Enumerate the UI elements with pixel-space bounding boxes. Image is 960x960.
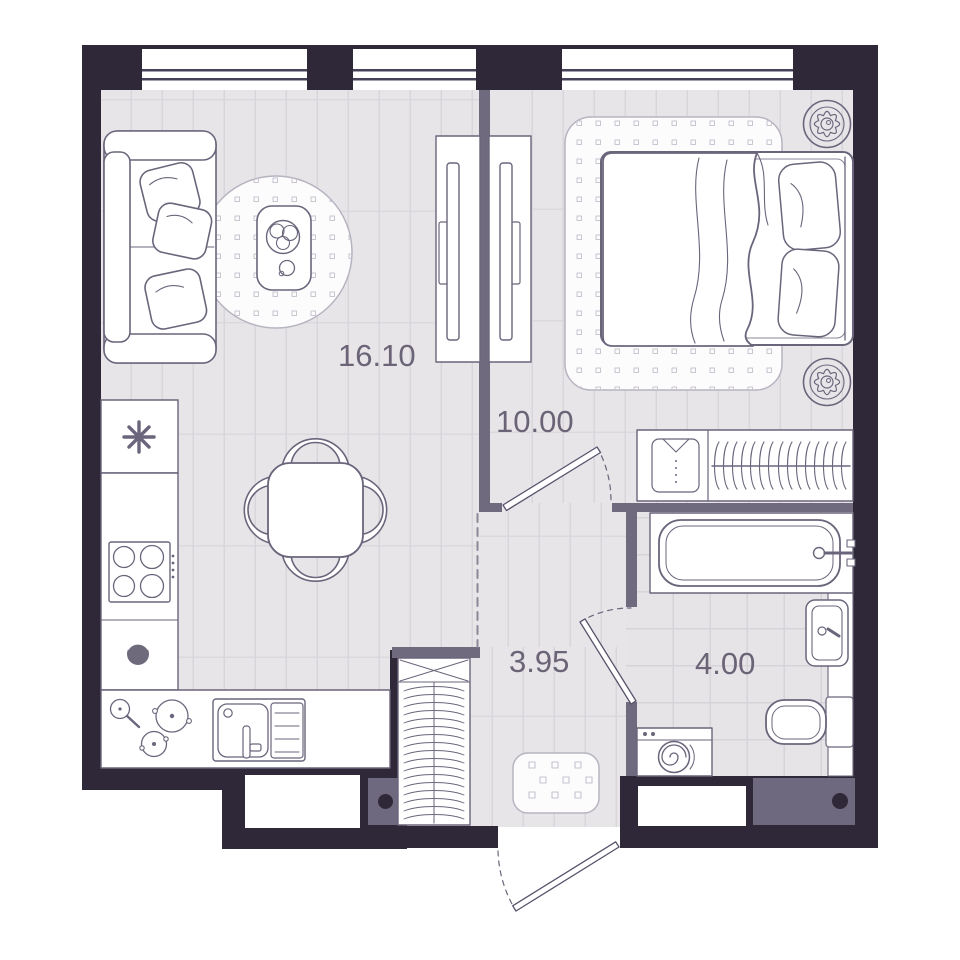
washing-machine — [637, 728, 712, 776]
wardrobe — [637, 430, 853, 501]
bathtub — [650, 513, 855, 593]
dining-set — [244, 439, 386, 581]
plant-icon — [804, 359, 851, 406]
floorplan-canvas: 16.10 10.00 3.95 4.00 — [0, 0, 960, 960]
drainboard — [271, 703, 303, 758]
area-label-bedroom: 10.00 — [496, 404, 574, 440]
doormat — [513, 753, 599, 813]
snowflake-icon — [124, 422, 154, 452]
stove — [109, 542, 174, 602]
sofa-pillow — [151, 201, 214, 261]
double-bed — [601, 152, 853, 346]
entrance-door — [498, 842, 619, 911]
blanket — [603, 153, 759, 346]
bedroom-door — [503, 447, 611, 511]
sofa-pillow — [143, 267, 209, 331]
coffee-table — [257, 206, 311, 290]
toilet — [766, 697, 853, 747]
faucet-icon — [243, 726, 250, 758]
tv-dresser-bedroom — [489, 136, 531, 362]
pillow — [777, 161, 841, 252]
area-label-bathroom: 4.00 — [695, 646, 755, 682]
bowl — [127, 643, 149, 665]
area-label-hallway: 3.95 — [509, 644, 569, 680]
pillow — [777, 248, 840, 338]
tv-unit-living — [436, 136, 480, 362]
fridge — [101, 400, 178, 473]
area-label-living-kitchen: 16.10 — [338, 338, 416, 374]
plant-icon — [804, 101, 851, 148]
dining-table — [268, 463, 363, 557]
shoe-cabinet — [398, 658, 470, 825]
sofa — [104, 131, 216, 363]
furniture-layer — [0, 0, 960, 960]
washbasin — [806, 600, 848, 666]
bathroom-door — [580, 608, 636, 704]
kitchen-sink — [213, 699, 305, 761]
